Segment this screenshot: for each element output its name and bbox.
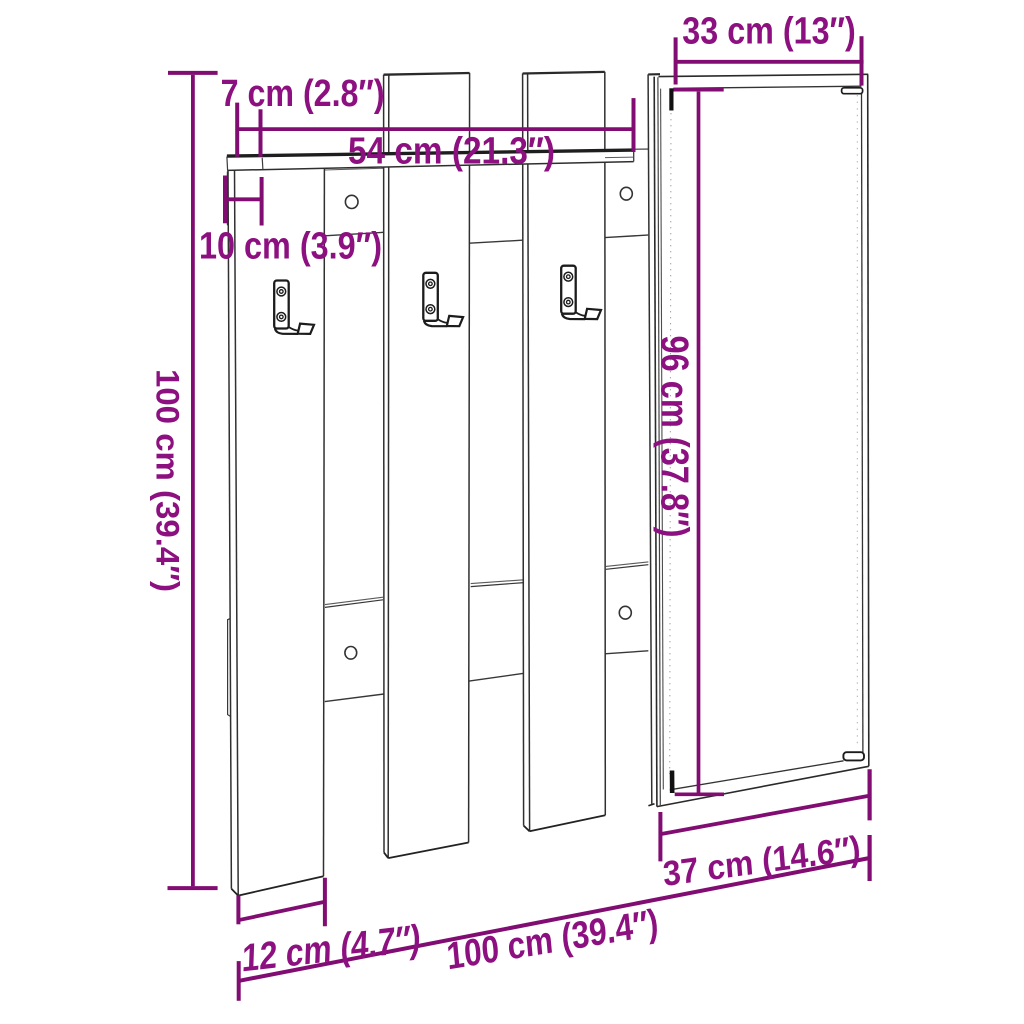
svg-text:100 cm (39.4″): 100 cm (39.4″)	[150, 369, 186, 592]
svg-text:33 cm (13″): 33 cm (13″)	[682, 11, 856, 53]
svg-text:54 cm (21.3″): 54 cm (21.3″)	[348, 130, 555, 172]
svg-text:96 cm (37.8″): 96 cm (37.8″)	[653, 336, 696, 538]
svg-text:7 cm (2.8″): 7 cm (2.8″)	[221, 73, 385, 115]
svg-text:10 cm (3.9″): 10 cm (3.9″)	[199, 225, 382, 267]
